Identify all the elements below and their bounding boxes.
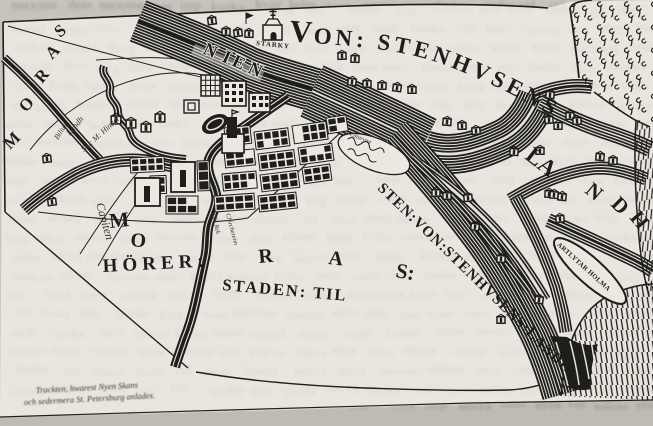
svg-text:vid: vid xyxy=(64,364,81,378)
svg-text:strand: strand xyxy=(48,211,81,225)
svg-text:ное: ное xyxy=(201,97,221,111)
svg-text:torp: torp xyxy=(445,290,466,302)
svg-text:tiden: tiden xyxy=(139,347,164,359)
svg-text:stora: stora xyxy=(368,346,395,360)
svg-text:tiden: tiden xyxy=(181,2,210,17)
svg-text:войско: войско xyxy=(63,43,99,55)
svg-text:torp: torp xyxy=(223,249,247,264)
svg-text:bruk: bruk xyxy=(50,79,79,94)
svg-text:landet: landet xyxy=(12,22,46,36)
svg-text:поселен: поселен xyxy=(155,230,197,244)
svg-text:войско: войско xyxy=(568,98,605,112)
svg-text:места: места xyxy=(9,343,43,358)
svg-text:шведск: шведск xyxy=(475,327,513,339)
svg-text:efter: efter xyxy=(97,22,122,36)
svg-text:elfven: elfven xyxy=(181,139,209,151)
svg-text:tiden: tiden xyxy=(364,307,390,321)
svg-text:under: under xyxy=(211,383,245,398)
svg-text:torp: torp xyxy=(7,176,28,188)
svg-text:landet: landet xyxy=(245,365,279,379)
svg-text:stora: stora xyxy=(337,364,366,379)
svg-text:stora: stora xyxy=(315,270,339,282)
svg-text:O: O xyxy=(130,229,147,252)
svg-text:midt: midt xyxy=(326,231,353,246)
svg-text:stads: stads xyxy=(9,325,38,340)
svg-text:socken: socken xyxy=(452,346,485,358)
svg-text:strand: strand xyxy=(250,327,285,341)
svg-text:under: under xyxy=(491,42,520,54)
svg-text:under: under xyxy=(10,251,42,265)
svg-text:berg: berg xyxy=(618,269,641,283)
svg-text:krig: krig xyxy=(306,196,327,208)
svg-text:hvar: hvar xyxy=(332,212,358,227)
svg-text:шведск: шведск xyxy=(287,308,327,322)
svg-text:finska: finska xyxy=(3,154,35,168)
svg-text:midt: midt xyxy=(353,269,380,284)
svg-text:hvar: hvar xyxy=(130,78,157,93)
svg-text:bruk: bruk xyxy=(59,191,87,206)
svg-text:места: места xyxy=(324,381,359,396)
svg-text:skans: skans xyxy=(436,325,465,339)
svg-text:socken: socken xyxy=(251,212,289,227)
svg-text:neva: neva xyxy=(532,39,559,54)
svg-text:stora: stora xyxy=(475,366,500,378)
svg-text:поселен: поселен xyxy=(232,306,276,320)
svg-text:krig: krig xyxy=(492,173,515,187)
svg-text:lilla: lilla xyxy=(335,176,354,188)
svg-text:landet: landet xyxy=(15,363,50,377)
svg-text:vid: vid xyxy=(456,22,474,36)
svg-text:neva: neva xyxy=(127,59,154,74)
svg-text:krig: krig xyxy=(464,100,485,112)
svg-text:gamla: gamla xyxy=(213,328,243,340)
svg-text:gamla: gamla xyxy=(116,307,148,321)
svg-text:landet: landet xyxy=(423,268,457,282)
svg-text:tiden: tiden xyxy=(336,192,365,207)
svg-text:neva: neva xyxy=(151,137,174,149)
svg-text:landet: landet xyxy=(386,326,420,340)
svg-text:under: under xyxy=(127,96,160,111)
svg-text:карта: карта xyxy=(249,345,284,360)
svg-text:finska: finska xyxy=(411,22,445,36)
svg-text:torp: torp xyxy=(135,213,158,227)
svg-text:berg: berg xyxy=(110,41,136,56)
svg-text:места: места xyxy=(294,365,327,379)
svg-text:stora: stora xyxy=(98,326,124,340)
svg-text:kyrka: kyrka xyxy=(418,81,447,93)
svg-text:vid: vid xyxy=(15,306,33,320)
svg-text:места: места xyxy=(49,250,81,264)
svg-text:strand: strand xyxy=(94,344,128,358)
svg-text:bruk: bruk xyxy=(204,310,228,322)
svg-text:hvar: hvar xyxy=(396,5,418,17)
svg-text:ryska: ryska xyxy=(363,230,394,244)
svg-text:finska: finska xyxy=(528,60,562,74)
svg-text:stora: stora xyxy=(465,309,490,321)
svg-text:nyen: nyen xyxy=(377,287,405,302)
svg-text:шведск: шведск xyxy=(59,3,99,17)
svg-text:finska: finska xyxy=(92,366,123,379)
svg-text:finska: finska xyxy=(347,2,379,16)
svg-text:lilla: lilla xyxy=(6,291,25,303)
svg-text:elfven: elfven xyxy=(429,362,464,377)
svg-text:berg: berg xyxy=(101,1,127,16)
svg-text:hvar: hvar xyxy=(410,287,437,302)
svg-text:vid: vid xyxy=(303,214,319,226)
svg-text:tiden: tiden xyxy=(35,232,63,246)
svg-text:elfven: elfven xyxy=(299,329,329,341)
svg-text:holm: holm xyxy=(348,289,374,302)
svg-text:finska: finska xyxy=(39,307,69,320)
svg-text:nyen: nyen xyxy=(333,306,359,320)
svg-text:войско: войско xyxy=(14,270,54,284)
svg-text:R: R xyxy=(258,245,275,268)
svg-text:bruk: bruk xyxy=(46,289,74,303)
svg-text:lilla: lilla xyxy=(80,308,99,320)
svg-text:lilla: lilla xyxy=(486,23,505,36)
svg-text:midt: midt xyxy=(508,2,534,16)
svg-text:карта: карта xyxy=(295,346,326,360)
svg-text:skans: skans xyxy=(425,307,454,321)
svg-text:elfven: elfven xyxy=(282,230,314,244)
svg-text:A: A xyxy=(327,247,344,270)
svg-text:berg: berg xyxy=(50,157,75,171)
svg-text:skans: skans xyxy=(561,136,589,149)
svg-text:поселен: поселен xyxy=(6,4,49,18)
svg-text:berg: berg xyxy=(5,232,28,246)
svg-text:dens: dens xyxy=(352,61,376,75)
svg-text:gamla: gamla xyxy=(284,384,315,398)
svg-text:socken: socken xyxy=(122,289,157,303)
svg-text:skans: skans xyxy=(224,2,254,16)
svg-text:lilla: lilla xyxy=(170,382,190,396)
svg-text:elfven: elfven xyxy=(62,270,91,282)
svg-text:места: места xyxy=(526,23,560,37)
svg-text:skans: skans xyxy=(136,367,164,379)
svg-text:поселен: поселен xyxy=(380,365,423,379)
svg-text:bruk: bruk xyxy=(366,211,392,225)
svg-text:finska: finska xyxy=(51,344,82,358)
svg-text:dens: dens xyxy=(250,232,273,246)
svg-text:efter: efter xyxy=(382,61,407,75)
svg-text:ryska: ryska xyxy=(55,327,84,341)
svg-text:landet: landet xyxy=(77,98,111,112)
svg-text:dens: dens xyxy=(63,59,87,73)
svg-text:V: V xyxy=(289,13,314,50)
svg-text:under: under xyxy=(2,118,34,132)
svg-text:finska: finska xyxy=(366,383,401,398)
svg-text:elfven: elfven xyxy=(405,344,436,358)
svg-text:tiden: tiden xyxy=(332,346,357,358)
svg-text:stads: stads xyxy=(345,327,371,341)
svg-text:bruk: bruk xyxy=(251,386,275,398)
svg-text:torp: torp xyxy=(430,98,453,112)
svg-text:ное: ное xyxy=(401,308,419,322)
svg-text:карта: карта xyxy=(294,250,329,265)
svg-text:ное: ное xyxy=(220,345,240,360)
